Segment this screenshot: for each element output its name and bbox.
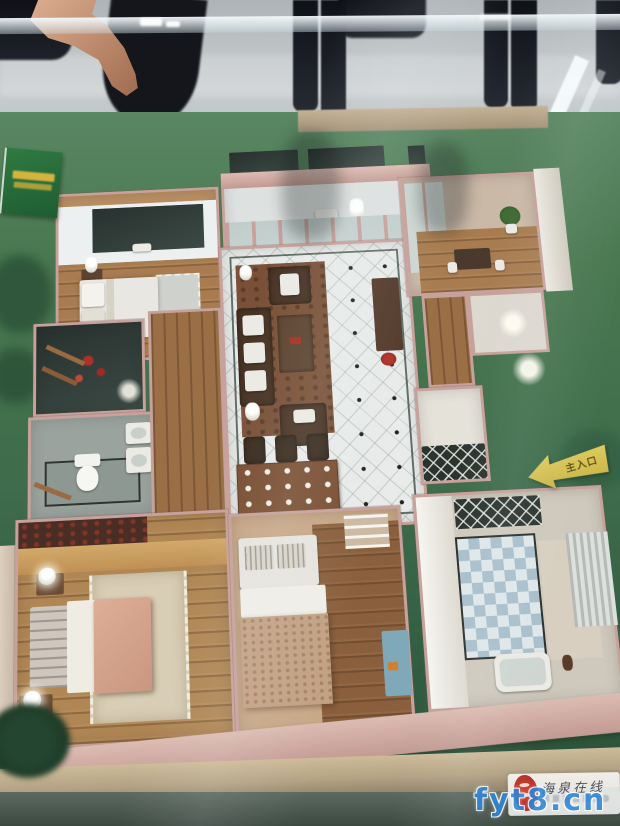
light-glare bbox=[498, 308, 528, 338]
plaque-text-line bbox=[14, 182, 52, 191]
light-glare bbox=[512, 352, 546, 386]
bedroom2-headboard bbox=[238, 535, 319, 590]
ladder-shelf bbox=[344, 513, 390, 549]
glass-reflection-silhouette bbox=[418, 142, 468, 234]
hallway-right bbox=[421, 294, 475, 388]
shower-screen bbox=[565, 531, 618, 627]
pillow bbox=[244, 545, 273, 571]
glass-glint bbox=[166, 21, 180, 27]
hallway-center bbox=[148, 308, 229, 526]
desk-item bbox=[388, 662, 399, 671]
dining-chair bbox=[275, 435, 298, 463]
wood-rail bbox=[45, 345, 85, 366]
toilet-bowl bbox=[77, 465, 99, 491]
watermark-url: fyt8.cn bbox=[474, 783, 606, 818]
pillow bbox=[243, 342, 265, 363]
bathroom-right bbox=[412, 485, 620, 712]
sofa bbox=[236, 307, 275, 407]
dining-table bbox=[236, 460, 340, 516]
glass-reflection-silhouette bbox=[282, 132, 340, 240]
bathtub-interior bbox=[499, 657, 547, 687]
bathtub bbox=[493, 652, 552, 693]
blue-desk bbox=[381, 630, 412, 697]
armchair bbox=[268, 266, 312, 306]
pillow bbox=[277, 543, 306, 569]
sink-basin bbox=[131, 427, 147, 439]
pillow bbox=[280, 273, 300, 295]
wood-rail bbox=[41, 366, 78, 386]
figurine bbox=[562, 655, 574, 671]
bathroom-left bbox=[28, 411, 158, 522]
checkered-floor bbox=[455, 533, 547, 660]
light-glare bbox=[116, 378, 142, 404]
plaque-text-line bbox=[12, 170, 55, 182]
coffee-table bbox=[277, 314, 315, 373]
master-duvet bbox=[93, 597, 152, 694]
study-chair bbox=[495, 260, 506, 271]
info-plaque bbox=[0, 148, 63, 219]
glass-glint bbox=[140, 18, 162, 26]
pillow bbox=[81, 283, 104, 308]
bedroom2-duvet bbox=[240, 613, 333, 708]
plant-pot bbox=[505, 224, 517, 234]
counter-items bbox=[132, 243, 151, 252]
sink bbox=[126, 447, 152, 473]
dining-chair bbox=[243, 436, 266, 464]
glass-glint bbox=[480, 14, 510, 20]
study-chair bbox=[447, 262, 457, 273]
pillow bbox=[293, 409, 315, 423]
tv-cabinet bbox=[371, 277, 403, 351]
red-flower bbox=[96, 368, 105, 377]
kitchen-lattice-window bbox=[422, 443, 488, 481]
bed-fold-white bbox=[240, 585, 327, 618]
floor-lamp bbox=[245, 402, 260, 421]
sink-basin bbox=[131, 454, 147, 467]
pillow bbox=[244, 370, 266, 392]
bedroom-2 bbox=[228, 505, 416, 742]
photo-of-model-home: 主入口 海泉在线 fyt8.cn bbox=[0, 0, 620, 826]
glass-roof-grid bbox=[454, 495, 543, 529]
kitchen-bay bbox=[414, 385, 491, 484]
dining-chair bbox=[306, 433, 329, 461]
master-pillows bbox=[30, 605, 69, 689]
floor-lamp bbox=[239, 265, 252, 281]
sink bbox=[126, 422, 152, 444]
bed-fold-white bbox=[67, 600, 96, 693]
pillow bbox=[242, 315, 264, 336]
bedside-lamp bbox=[85, 256, 97, 273]
table-decor bbox=[289, 337, 301, 345]
study-desk bbox=[454, 248, 492, 270]
